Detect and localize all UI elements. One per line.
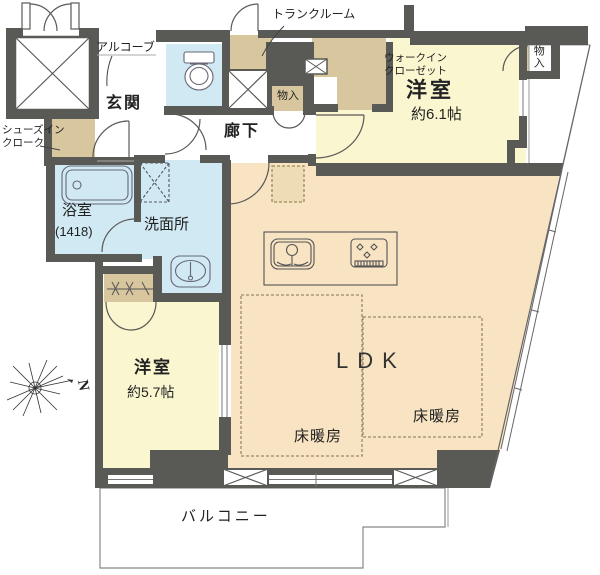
toilet-icon	[184, 52, 214, 90]
closet-trunk-room	[226, 35, 272, 72]
room-bathroom	[52, 160, 138, 259]
refrigerator-space	[272, 166, 304, 202]
compass-north-label: N	[74, 379, 92, 393]
shutter-box-icon-right	[393, 469, 438, 486]
vent-box-icon	[305, 59, 327, 74]
room-bedroom-57	[95, 293, 222, 473]
shutter-box-icon-left	[223, 469, 268, 486]
floor-plan: N アルコーブ トランクルーム 玄関 廊下 物入 ウォークイン クローゼット 洋…	[0, 0, 600, 575]
elevator-shaft-icon	[15, 37, 90, 110]
compass-icon	[7, 360, 73, 416]
pipe-space-icon	[228, 70, 268, 109]
floor-plan-drawing: N	[0, 0, 600, 575]
closet-storage-hall	[272, 84, 305, 111]
balcony-outline	[100, 488, 445, 568]
